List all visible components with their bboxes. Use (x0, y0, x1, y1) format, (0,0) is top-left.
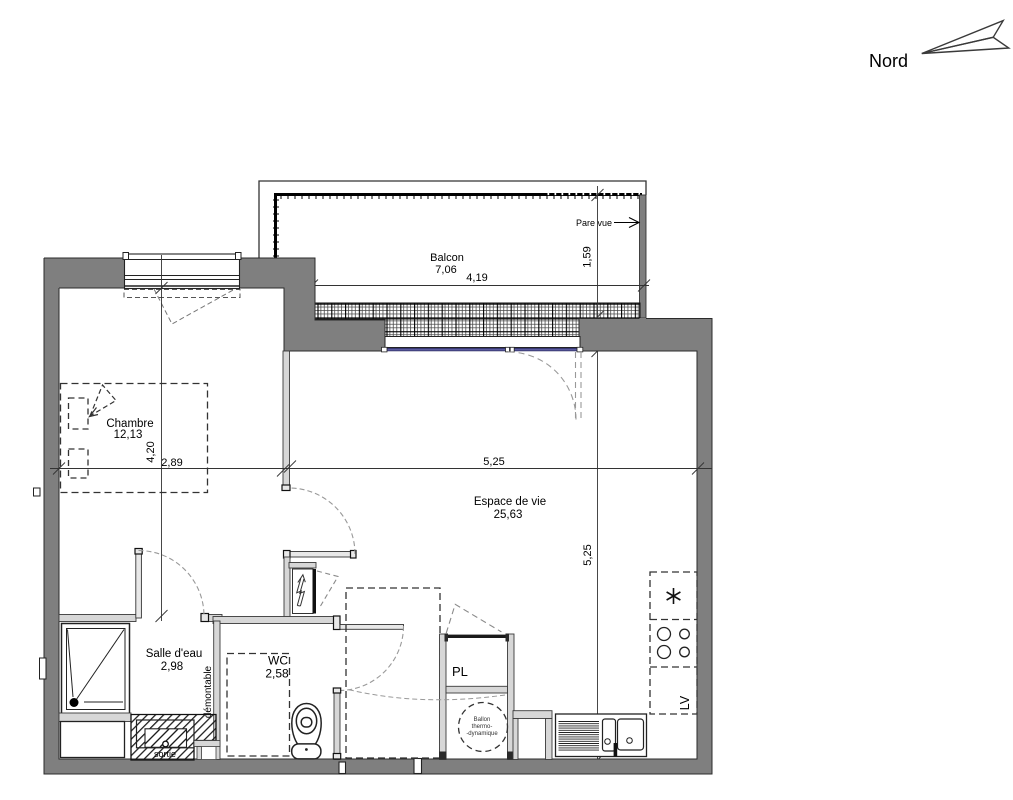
svg-text:5,25: 5,25 (483, 456, 504, 468)
svg-text:Salle d'eau: Salle d'eau (146, 648, 203, 660)
svg-text:2,58: 2,58 (265, 667, 289, 681)
svg-text:PL: PL (452, 664, 468, 679)
svg-text:12,13: 12,13 (114, 429, 143, 441)
svg-text:4,20: 4,20 (145, 441, 157, 462)
svg-text:1,59: 1,59 (582, 246, 594, 267)
svg-text:25,63: 25,63 (494, 509, 523, 521)
svg-text:Pare vue: Pare vue (576, 218, 612, 228)
svg-text:thermo-: thermo- (472, 724, 493, 730)
svg-text:Balcon: Balcon (430, 252, 464, 264)
svg-text:-dynamique: -dynamique (466, 731, 498, 737)
svg-text:2,89: 2,89 (161, 457, 182, 469)
svg-text:sortie: sortie (154, 749, 176, 759)
svg-text:LV: LV (678, 695, 692, 710)
svg-text:2,98: 2,98 (161, 661, 183, 673)
svg-text:Espace de vie: Espace de vie (474, 496, 546, 508)
svg-text:Ballon: Ballon (474, 717, 491, 723)
svg-text:4,19: 4,19 (466, 272, 487, 284)
svg-text:WC: WC (268, 654, 288, 668)
svg-text:7,06: 7,06 (435, 264, 456, 276)
svg-text:démontable: démontable (203, 665, 214, 718)
svg-text:5,25: 5,25 (582, 544, 594, 565)
svg-text:Nord: Nord (869, 51, 908, 71)
